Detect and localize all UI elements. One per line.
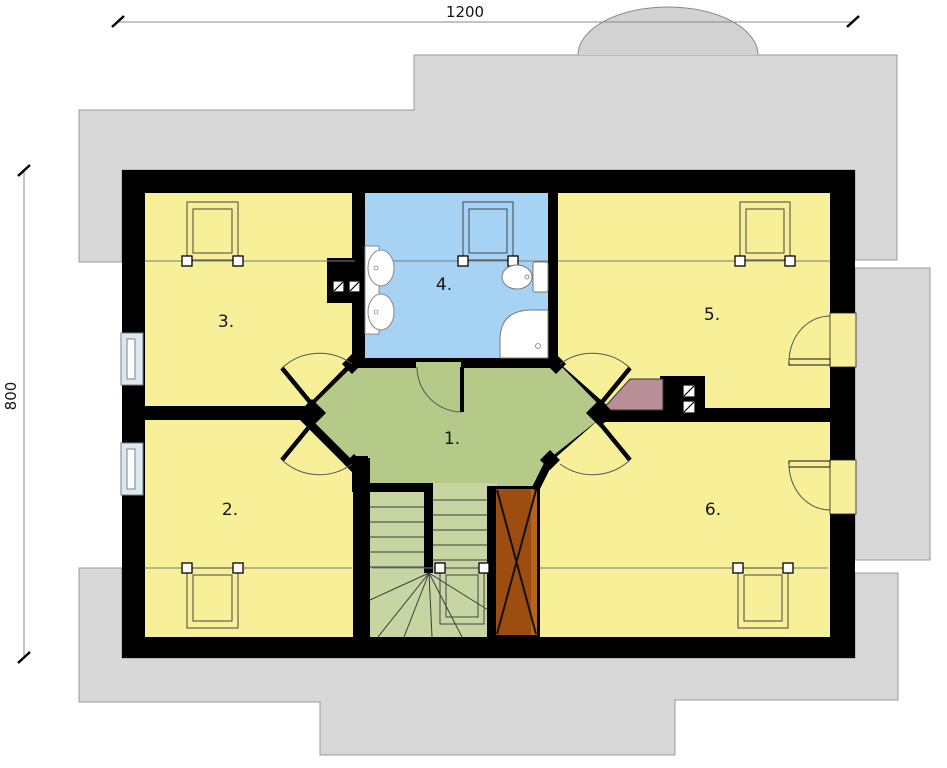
dimension-width-label: 1200 [446, 3, 484, 21]
window-room2 [121, 443, 143, 495]
stair-top-wall [360, 483, 433, 492]
room-2-label: 2. [222, 500, 238, 520]
room-2-floor [145, 420, 353, 637]
washbasin-icon [368, 250, 394, 286]
washbasin-icon [368, 294, 394, 330]
room-3-label: 3. [218, 312, 234, 332]
balcony-door-opening-room6 [830, 460, 856, 514]
room-4-label: 4. [436, 275, 452, 295]
balcony-door-leaf-room6 [789, 461, 830, 467]
roof-right-balcony [855, 268, 930, 560]
dimension-height-label: 800 [2, 382, 20, 411]
floor-plan-canvas: 1200 800 1. 2. 3. 4. 5. 6. [0, 0, 947, 768]
wall-room2-room3 [122, 406, 306, 420]
balcony-door-leaf-room5 [789, 359, 830, 365]
stair-center-wall [424, 483, 433, 573]
brown-panel [493, 486, 540, 638]
room-6-floor [539, 416, 830, 637]
room-3-floor [145, 193, 352, 406]
balcony-door-opening-room5 [830, 313, 856, 367]
bathroom-right-wall [548, 193, 558, 362]
hall-top-wall-right [461, 358, 558, 368]
room-5-floor [558, 193, 830, 408]
floor-plan-drawing: 1200 800 1. 2. 3. 4. 5. 6. [0, 0, 947, 768]
chimney-right [660, 376, 705, 422]
toilet-icon [502, 262, 548, 292]
room-1-label: 1. [444, 429, 460, 449]
window-room3 [121, 333, 143, 385]
hall-top-wall-left [352, 358, 416, 368]
brown-panel-edge [531, 489, 537, 635]
room-6-label: 6. [705, 500, 721, 520]
room-5-label: 5. [704, 305, 720, 325]
